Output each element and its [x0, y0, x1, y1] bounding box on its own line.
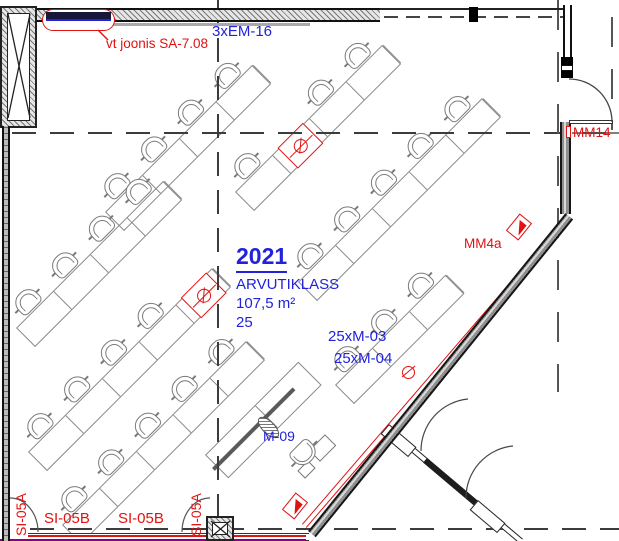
gridline-vertical-right [557, 0, 559, 392]
column-bottom [206, 516, 234, 541]
label-device-m09: M-09 [263, 428, 295, 444]
wall-left [2, 126, 10, 541]
room-name: ARVUTIKLASS [236, 276, 339, 293]
wall-tick [469, 7, 478, 22]
label-top-supply: 3xEM-16 [212, 23, 272, 40]
outlet-symbol-mm14 [566, 126, 571, 138]
door-leaf-right [569, 120, 613, 124]
label-switch-si05a-right: SI-05A [188, 493, 204, 536]
projection-screen [46, 12, 111, 21]
gridline-bottom [30, 528, 619, 530]
room-number: 2021 [236, 243, 287, 273]
gridline-vertical-far-right [611, 17, 613, 130]
shaft-column-top-left [0, 6, 37, 128]
cable-line-bottom-red [28, 535, 306, 537]
room-capacity: 25 [236, 314, 339, 331]
outlet-symbol-mm4a [506, 213, 532, 240]
label-revision-note: vt joonis SA-7.08 [106, 36, 208, 51]
door-jamb-block [561, 57, 573, 65]
label-switch-si05a-left: SI-05A [13, 493, 29, 536]
gridline-horizontal [12, 132, 619, 134]
label-switch-si05b-1: SI-05B [44, 510, 90, 527]
floor-plan: 3xEM-16 vt joonis SA-7.08 2021 ARVUTIKLA… [0, 0, 619, 541]
label-outlet-mm4a: MM4a [464, 236, 502, 251]
room-area: 107,5 m² [236, 295, 339, 312]
column-inner [212, 522, 228, 535]
room-label-block: 2021 ARVUTIKLASS 107,5 m² 25 [236, 243, 339, 331]
desk-row [105, 65, 271, 231]
outlet-symbol-bottom [282, 492, 308, 519]
label-outlet-mm14: MM14 [573, 125, 611, 140]
label-cable-run-1: 25xM-03 [328, 328, 386, 345]
gridline-vertical-center [217, 0, 219, 517]
label-cable-run-2: 25xM-04 [334, 350, 392, 367]
door-jamb-block-2 [561, 71, 573, 78]
wall-top-shadow [95, 23, 310, 26]
shaft-inner [7, 13, 30, 121]
wall-right-upper [563, 5, 572, 57]
junction-symbol [402, 366, 415, 379]
label-switch-si05b-2: SI-05B [118, 510, 164, 527]
